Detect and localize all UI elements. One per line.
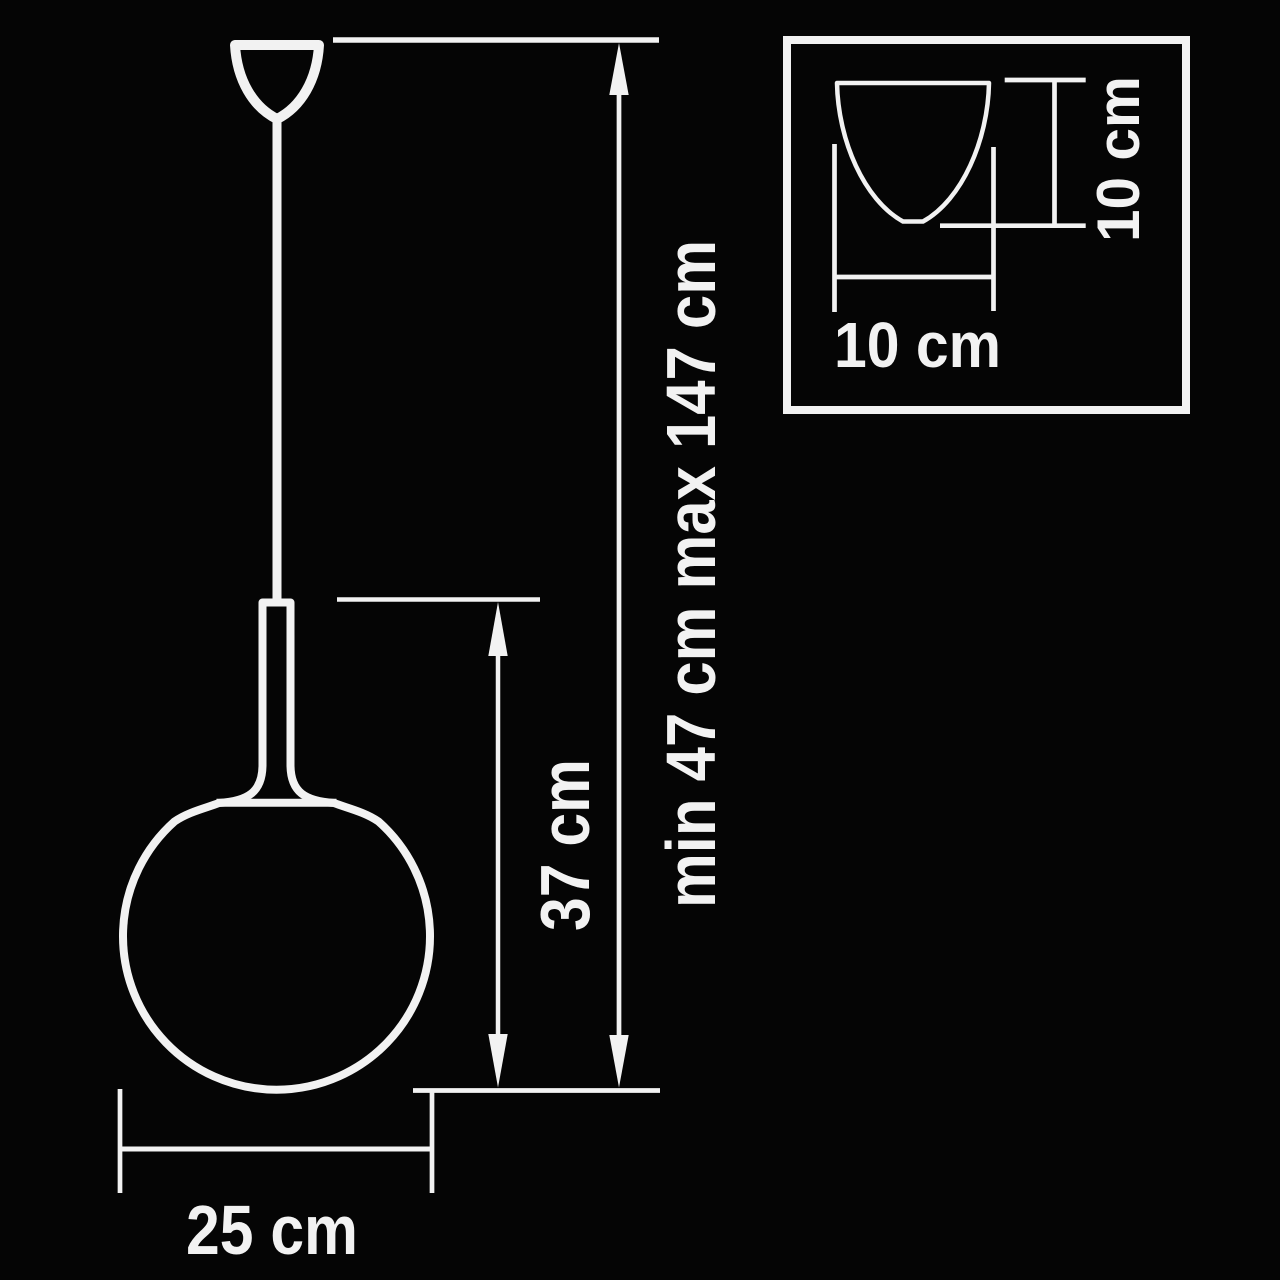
- svg-text:37 cm: 37 cm: [526, 759, 604, 931]
- svg-text:25 cm: 25 cm: [186, 1191, 358, 1269]
- svg-text:10 cm: 10 cm: [1085, 76, 1152, 242]
- svg-text:min 47 cm max 147 cm: min 47 cm max 147 cm: [652, 240, 730, 908]
- svg-text:10 cm: 10 cm: [834, 309, 1001, 381]
